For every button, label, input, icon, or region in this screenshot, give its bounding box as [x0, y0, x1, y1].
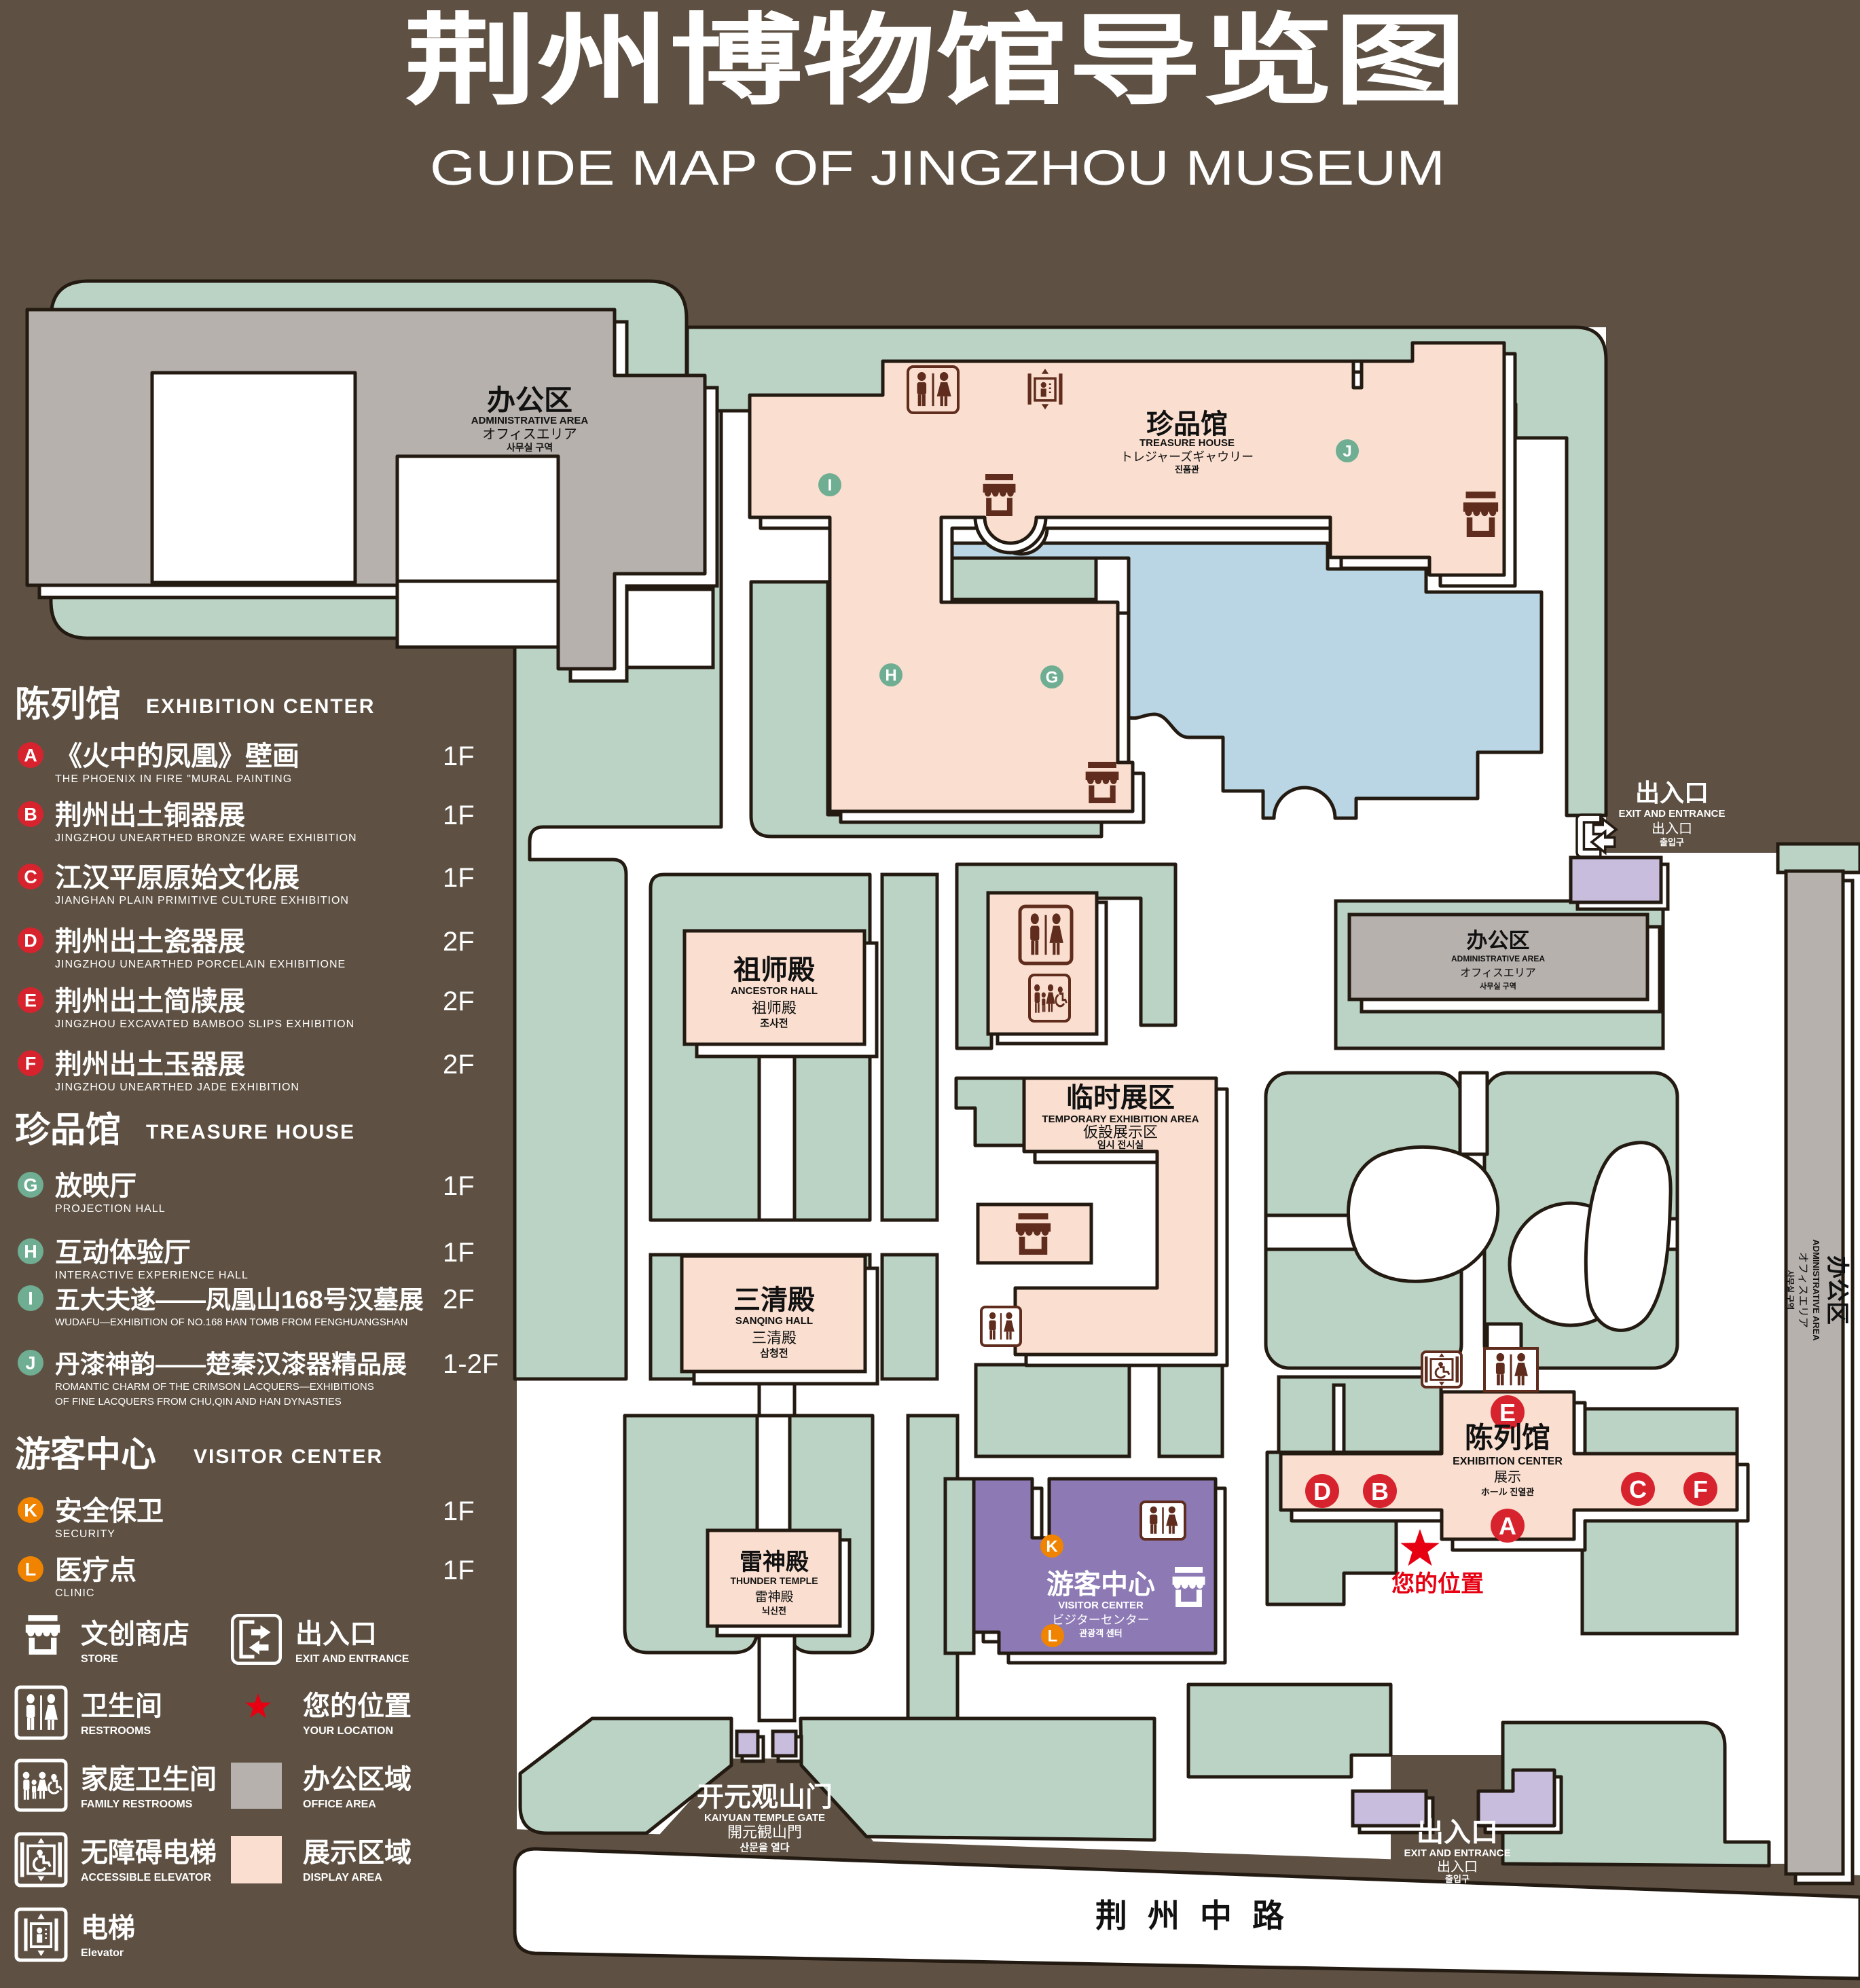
- svg-text:FAMILY RESTROOMS: FAMILY RESTROOMS: [81, 1799, 193, 1810]
- svg-text:展示: 展示: [1494, 1470, 1521, 1485]
- svg-text:江汉平原原始文化展: 江汉平原原始文化展: [55, 863, 299, 893]
- svg-text:ACCESSIBLE ELEVATOR: ACCESSIBLE ELEVATOR: [81, 1872, 211, 1883]
- svg-text:游客中心: 游客中心: [15, 1435, 156, 1475]
- svg-text:SECURITY: SECURITY: [55, 1528, 115, 1540]
- svg-text:PROJECTION HALL: PROJECTION HALL: [55, 1203, 166, 1215]
- svg-text:사무실 구역: 사무실 구역: [1785, 1270, 1795, 1310]
- svg-text:五大夫遂——凤凰山168号汉墓展: 五大夫遂——凤凰山168号汉墓展: [55, 1286, 424, 1314]
- svg-text:2F: 2F: [443, 1050, 475, 1080]
- svg-text:TREASURE HOUSE: TREASURE HOUSE: [146, 1121, 355, 1143]
- svg-text:办公区域: 办公区域: [303, 1765, 412, 1794]
- svg-text:1F: 1F: [443, 800, 475, 830]
- svg-text:EXIT AND ENTRANCE: EXIT AND ENTRANCE: [295, 1653, 409, 1665]
- svg-text:办公区: 办公区: [1824, 1255, 1850, 1325]
- svg-text:1F: 1F: [443, 1496, 475, 1526]
- svg-text:1-2F: 1-2F: [443, 1349, 498, 1379]
- svg-text:荆州出土玉器展: 荆州出土玉器展: [55, 1050, 245, 1080]
- svg-text:I: I: [28, 1289, 33, 1309]
- svg-text:2F: 2F: [443, 1285, 475, 1314]
- svg-text:G: G: [1046, 669, 1059, 687]
- svg-text:您的位置: 您的位置: [1391, 1571, 1484, 1597]
- svg-text:B: B: [24, 805, 37, 825]
- svg-text:YOUR LOCATION: YOUR LOCATION: [303, 1725, 393, 1737]
- svg-text:1F: 1F: [443, 1556, 475, 1585]
- svg-text:F: F: [25, 1054, 37, 1074]
- svg-text:진품관: 진품관: [1175, 464, 1199, 475]
- svg-text:뇌신전: 뇌신전: [762, 1606, 786, 1616]
- svg-text:安全保卫: 安全保卫: [55, 1496, 164, 1526]
- svg-text:I: I: [828, 477, 833, 495]
- svg-text:D: D: [1313, 1477, 1331, 1505]
- svg-text:游客中心: 游客中心: [1046, 1570, 1155, 1600]
- svg-text:医疗点: 医疗点: [55, 1556, 136, 1585]
- svg-text:조사전: 조사전: [760, 1018, 788, 1029]
- svg-text:1F: 1F: [443, 741, 475, 771]
- svg-text:JIANGHAN PLAIN PRIMITIVE CULTU: JIANGHAN PLAIN PRIMITIVE CULTURE EXHIBIT…: [55, 895, 349, 906]
- svg-text:出入口: 出入口: [295, 1619, 377, 1649]
- svg-text:陈列馆: 陈列馆: [1465, 1422, 1550, 1454]
- svg-text:J: J: [1343, 443, 1351, 461]
- svg-text:珍品馆: 珍品馆: [1146, 409, 1228, 439]
- svg-text:1F: 1F: [443, 1171, 475, 1201]
- svg-text:仮設展示区: 仮設展示区: [1083, 1124, 1158, 1141]
- svg-text:JINGZHOU EXCAVATED BAMBOO SLIP: JINGZHOU EXCAVATED BAMBOO SLIPS EXHIBITI…: [55, 1018, 354, 1030]
- svg-text:三清殿: 三清殿: [733, 1285, 815, 1315]
- svg-text:사무실 구역: 사무실 구역: [1480, 981, 1516, 991]
- svg-text:祖师殿: 祖师殿: [752, 999, 797, 1016]
- svg-text:《火中的凤凰》壁画: 《火中的凤凰》壁画: [55, 741, 299, 771]
- svg-text:オフィスエリア: オフィスエリア: [1797, 1252, 1808, 1328]
- svg-text:GUIDE MAP OF JINGZHOU MUSEUM: GUIDE MAP OF JINGZHOU MUSEUM: [430, 141, 1445, 196]
- svg-text:开元观山门: 开元观山门: [697, 1782, 833, 1812]
- svg-text:2F: 2F: [443, 987, 475, 1016]
- svg-text:THUNDER TEMPLE: THUNDER TEMPLE: [730, 1575, 818, 1586]
- svg-text:荆 州 中 路: 荆 州 中 路: [1095, 1898, 1285, 1934]
- svg-text:丹漆神韵——楚秦汉漆器精品展: 丹漆神韵——楚秦汉漆器精品展: [55, 1350, 407, 1378]
- svg-text:사무실 구역: 사무실 구역: [507, 442, 553, 453]
- svg-text:您的位置: 您的位置: [303, 1691, 412, 1721]
- svg-text:出入口: 出入口: [1417, 1818, 1498, 1847]
- svg-text:WUDAFU—EXHIBITION OF NO.168 HA: WUDAFU—EXHIBITION OF NO.168 HAN TOMB FRO…: [55, 1317, 408, 1328]
- svg-text:雷神殿: 雷神殿: [754, 1589, 793, 1604]
- svg-text:出入口: 出入口: [1635, 779, 1709, 807]
- svg-text:H: H: [24, 1242, 37, 1262]
- svg-text:ADMINISTRATIVE AREA: ADMINISTRATIVE AREA: [1811, 1239, 1821, 1341]
- svg-text:JINGZHOU UNEARTHED JADE EXHIBI: JINGZHOU UNEARTHED JADE EXHIBITION: [55, 1082, 299, 1093]
- svg-text:D: D: [24, 931, 37, 951]
- svg-text:E: E: [24, 991, 37, 1011]
- svg-text:放映厅: 放映厅: [55, 1171, 136, 1201]
- svg-text:无障碍电梯: 无障碍电梯: [81, 1838, 217, 1868]
- svg-text:JINGZHOU UNEARTHED PORCELAIN E: JINGZHOU UNEARTHED PORCELAIN EXHIBITIONE: [55, 959, 346, 970]
- svg-text:L: L: [1048, 1627, 1058, 1646]
- svg-text:EXIT AND ENTRANCE: EXIT AND ENTRANCE: [1619, 808, 1726, 820]
- svg-text:珍品馆: 珍品馆: [15, 1111, 121, 1150]
- svg-text:L: L: [25, 1560, 37, 1580]
- svg-text:K: K: [24, 1501, 37, 1521]
- svg-text:SANQING HALL: SANQING HALL: [735, 1315, 813, 1327]
- svg-text:A: A: [1499, 1512, 1516, 1540]
- svg-text:EXHIBITION CENTER: EXHIBITION CENTER: [1453, 1456, 1563, 1467]
- svg-text:陈列馆: 陈列馆: [15, 685, 121, 724]
- svg-text:文创商店: 文创商店: [81, 1619, 189, 1649]
- svg-text:荆州出土铜器展: 荆州出土铜器展: [55, 800, 245, 830]
- svg-text:J: J: [25, 1353, 35, 1374]
- svg-text:祖师殿: 祖师殿: [733, 955, 815, 985]
- svg-text:荆州出土瓷器展: 荆州出土瓷器展: [55, 927, 245, 957]
- svg-text:출입구: 출입구: [1445, 1874, 1470, 1884]
- svg-text:출입구: 출입구: [1660, 837, 1684, 847]
- svg-text:Elevator: Elevator: [81, 1947, 124, 1959]
- svg-text:EXHIBITION CENTER: EXHIBITION CENTER: [146, 695, 375, 718]
- svg-text:OFFICE AREA: OFFICE AREA: [303, 1799, 376, 1810]
- svg-text:荆州博物馆导览图: 荆州博物馆导览图: [404, 5, 1467, 116]
- svg-text:KAIYUAN TEMPLE GATE: KAIYUAN TEMPLE GATE: [704, 1812, 825, 1824]
- svg-text:RESTROOMS: RESTROOMS: [81, 1725, 151, 1737]
- svg-text:电梯: 电梯: [81, 1913, 135, 1943]
- svg-text:ROMANTIC CHARM OF THE CRIMSON: ROMANTIC CHARM OF THE CRIMSON LACQUERS—E…: [55, 1381, 374, 1393]
- svg-text:1F: 1F: [443, 1238, 475, 1268]
- svg-text:C: C: [24, 867, 37, 887]
- svg-text:C: C: [1629, 1475, 1647, 1503]
- svg-text:임시 전시실: 임시 전시실: [1097, 1139, 1144, 1150]
- svg-text:办公区: 办公区: [487, 384, 572, 416]
- svg-text:荆州出土简牍展: 荆州出土简牍展: [55, 987, 245, 1016]
- svg-text:展示区域: 展示区域: [303, 1838, 412, 1868]
- svg-text:VISITOR CENTER: VISITOR CENTER: [194, 1446, 383, 1468]
- svg-text:オフィスエリア: オフィスエリア: [482, 427, 577, 442]
- svg-text:トレジャーズギャウリー: トレジャーズギャウリー: [1120, 450, 1254, 464]
- svg-text:EXIT AND ENTRANCE: EXIT AND ENTRANCE: [1404, 1847, 1511, 1859]
- svg-text:B: B: [1371, 1477, 1389, 1505]
- svg-text:出入口: 出入口: [1437, 1859, 1478, 1875]
- svg-text:雷神殿: 雷神殿: [740, 1549, 809, 1575]
- svg-text:オフィスエリア: オフィスエリア: [1460, 968, 1536, 979]
- svg-text:ANCESTOR HALL: ANCESTOR HALL: [731, 985, 818, 997]
- svg-text:삼청전: 삼청전: [760, 1348, 788, 1359]
- svg-text:CLINIC: CLINIC: [55, 1587, 94, 1599]
- svg-text:F: F: [1693, 1475, 1708, 1503]
- svg-text:THE PHOENIX IN FIRE "MURAL PAI: THE PHOENIX IN FIRE "MURAL PAINTING: [55, 773, 292, 785]
- svg-text:出入口: 出入口: [1652, 821, 1692, 836]
- svg-text:2F: 2F: [443, 927, 475, 957]
- svg-text:산문을 열다: 산문을 열다: [740, 1842, 789, 1854]
- svg-text:H: H: [885, 667, 896, 685]
- svg-text:ホール 진열관: ホール 진열관: [1481, 1487, 1535, 1497]
- svg-text:ADMINISTRATIVE AREA: ADMINISTRATIVE AREA: [1451, 954, 1545, 963]
- svg-text:ADMINISTRATIVE AREA: ADMINISTRATIVE AREA: [471, 415, 589, 426]
- svg-text:三清殿: 三清殿: [752, 1329, 797, 1346]
- svg-text:VISITOR CENTER: VISITOR CENTER: [1058, 1600, 1144, 1611]
- svg-text:STORE: STORE: [81, 1653, 118, 1665]
- svg-text:互动体验厅: 互动体验厅: [55, 1238, 191, 1268]
- svg-text:DISPLAY AREA: DISPLAY AREA: [303, 1872, 382, 1883]
- svg-text:临时展区: 临时展区: [1066, 1083, 1175, 1113]
- svg-text:A: A: [24, 745, 37, 766]
- svg-text:INTERACTIVE EXPERIENCE HALL: INTERACTIVE EXPERIENCE HALL: [55, 1270, 249, 1281]
- svg-text:K: K: [1046, 1538, 1058, 1556]
- svg-text:办公区: 办公区: [1467, 929, 1530, 953]
- svg-text:JINGZHOU UNEARTHED BRONZE WARE: JINGZHOU UNEARTHED BRONZE WARE EXHIBITIO…: [55, 832, 357, 844]
- svg-text:OF FINE LACQUERS FROM CHU,QIN: OF FINE LACQUERS FROM CHU,QIN AND HAN DY…: [55, 1396, 342, 1407]
- svg-text:TREASURE HOUSE: TREASURE HOUSE: [1139, 437, 1235, 449]
- svg-text:관광객 센터: 관광객 센터: [1079, 1628, 1122, 1638]
- svg-text:1F: 1F: [443, 863, 475, 893]
- svg-text:卫生间: 卫生间: [81, 1691, 162, 1721]
- svg-text:G: G: [23, 1175, 37, 1196]
- svg-text:開元観山門: 開元観山門: [727, 1824, 802, 1841]
- svg-text:家庭卫生间: 家庭卫生间: [81, 1765, 217, 1794]
- svg-text:ビジターセンター: ビジターセンター: [1052, 1613, 1150, 1627]
